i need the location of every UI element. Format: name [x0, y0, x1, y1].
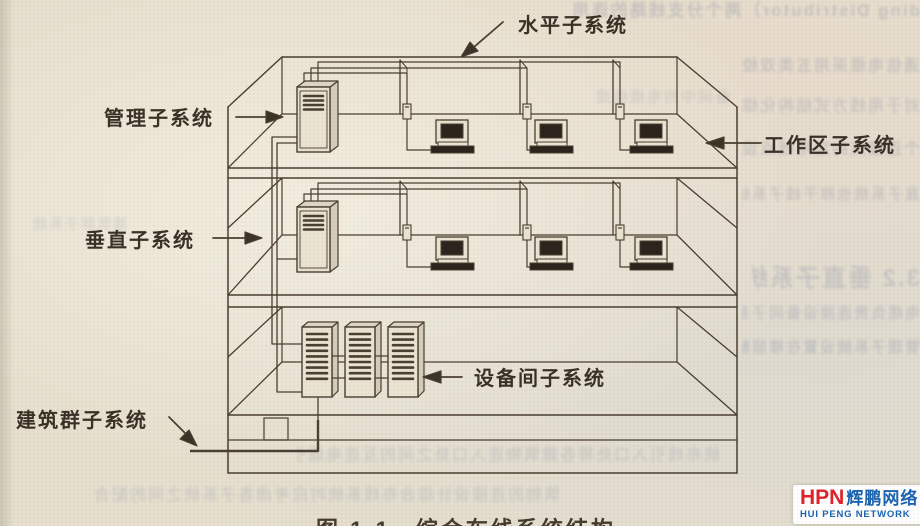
floor2-workstation-base: [431, 263, 474, 270]
label-horizontal-subsystem: 水平子系统: [518, 9, 628, 38]
floor1-workstation-keyboard: [637, 142, 667, 146]
floor2-right-ceiling-edge: [677, 178, 737, 228]
horizontal-subsystem-arrow: [474, 22, 503, 47]
campus-exit-cable: [190, 420, 318, 451]
floor2-partition-top-edge: [520, 181, 527, 189]
floor1-partition-top-edge: [520, 60, 527, 68]
floor1-outlet-to-pc-cable: [527, 119, 530, 150]
floor1-left-ceiling-edge: [228, 57, 282, 107]
floor2-right-floor-edge: [677, 235, 737, 295]
floor1-workstation-keyboard: [438, 142, 468, 146]
floor1-workstation-base: [530, 146, 573, 153]
hpn-watermark: HPN 辉鹏网络 HUI PENG NETWORK: [793, 485, 920, 524]
floor1-wall-outlet: [523, 104, 531, 119]
cabling-structure-diagram: [0, 0, 920, 526]
equipment-rack-3-top: [388, 322, 424, 327]
floor1-distribution-rack-side: [330, 81, 338, 152]
cable-duct-opening: [264, 418, 288, 440]
watermark-abbr: HPN: [800, 487, 844, 508]
equipment-rack-2-top: [345, 322, 381, 327]
equipment-rack-1-top: [302, 322, 338, 327]
floor2-distribution-rack-side: [330, 201, 338, 272]
floor2-wall-outlet: [616, 225, 624, 240]
equipment-rack-1-side: [332, 322, 338, 397]
floor1-workstation-screen: [640, 124, 662, 138]
floor1-workstation-screen: [441, 124, 463, 138]
floor1-workstation-screen: [540, 124, 562, 138]
label-management-subsystem: 管理子系统: [104, 102, 214, 131]
floor3-right-floor-edge: [677, 362, 737, 415]
watermark-name-cn: 辉鹏网络: [846, 490, 918, 507]
floor2-outlet-to-pc-cable: [620, 240, 630, 267]
floor2-workstation-base: [530, 263, 573, 270]
horizontal-subsystem-arrowhead: [461, 42, 478, 57]
floor2-partition-top-edge: [400, 181, 407, 189]
floor1-partition-top-edge: [400, 60, 407, 68]
floor1-distribution-rack-top: [297, 81, 338, 87]
floor2-workstation-screen: [540, 241, 562, 255]
floor2-workstation-base: [630, 263, 673, 270]
floor1-outlet-to-pc-cable: [620, 119, 630, 150]
campus-subsystem-arrow: [169, 417, 186, 434]
floor2-outlet-to-pc-cable: [407, 240, 431, 267]
floor2-partition-top-edge: [613, 181, 620, 189]
floor3-left-ceiling-edge: [228, 307, 282, 357]
floor1-wall-outlet: [616, 104, 624, 119]
scanned-book-page: ding Distributor）两个分支线路的连用 通信电缆采用五类双绞线与配…: [0, 0, 920, 526]
floor1-right-floor-edge: [677, 114, 737, 168]
label-vertical-subsystem: 垂直子系统: [85, 224, 195, 253]
label-campus-subsystem: 建筑群子系统: [16, 404, 148, 433]
vertical-subsystem-arrowhead: [245, 232, 262, 244]
floor1-wall-outlet: [403, 104, 411, 119]
floor2-workstation-keyboard: [438, 259, 468, 263]
floor1-workstation-base: [431, 146, 474, 153]
figure-caption: 图 1-1 综合布线系统结构: [316, 512, 616, 526]
equipment-room-subsystem-arrowhead: [423, 371, 441, 383]
floor1-workstation-keyboard: [537, 142, 567, 146]
floor2-workstation-screen: [640, 241, 662, 255]
label-work-area-subsystem: 工作区子系统: [764, 129, 896, 158]
floor1-right-ceiling-edge: [677, 57, 737, 107]
equipment-rack-2-side: [375, 322, 381, 397]
floor2-workstation-keyboard: [637, 259, 667, 263]
floor3-left-floor-edge: [228, 362, 282, 415]
label-equipment-room-subsystem: 设备间子系统: [474, 362, 606, 391]
equipment-rack-3-side: [418, 322, 424, 397]
floor1-workstation-base: [630, 146, 673, 153]
floor2-workstation-screen: [441, 241, 463, 255]
floor2-wall-outlet: [403, 225, 411, 240]
floor2-distribution-rack-top: [297, 201, 338, 207]
floor3-right-ceiling-edge: [677, 307, 737, 357]
floor2-left-floor-edge: [228, 235, 282, 295]
floor1-partition-top-edge: [613, 60, 620, 68]
floor1-outlet-to-pc-cable: [407, 119, 431, 150]
floor1-left-floor-edge: [228, 114, 282, 168]
floor2-wall-outlet: [523, 225, 531, 240]
campus-subsystem-arrowhead: [180, 430, 197, 446]
floor2-left-ceiling-edge: [228, 178, 282, 228]
work-area-subsystem-arrowhead: [706, 137, 724, 149]
watermark-name-en: HUI PENG NETWORK: [800, 510, 920, 520]
floor2-workstation-keyboard: [537, 259, 567, 263]
